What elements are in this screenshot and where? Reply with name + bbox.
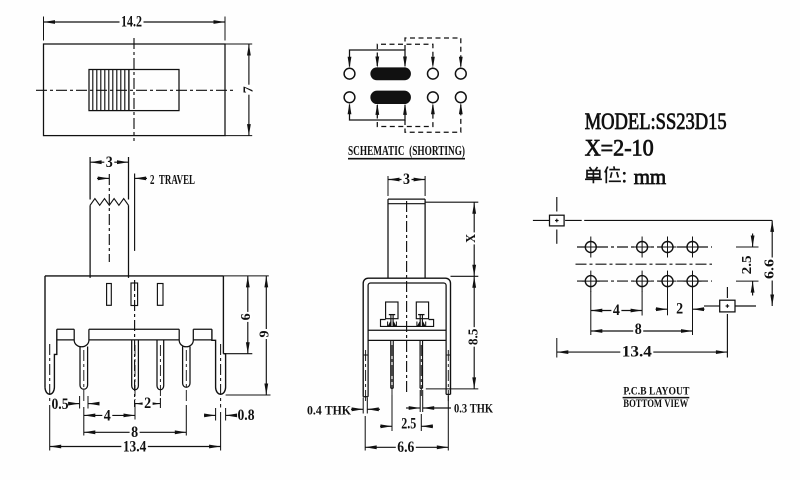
svg-text:3: 3: [106, 154, 113, 171]
svg-text:2: 2: [676, 301, 683, 318]
svg-text:14.2: 14.2: [121, 14, 142, 31]
svg-text:6: 6: [239, 313, 254, 320]
svg-text:3: 3: [403, 171, 410, 188]
svg-text:7: 7: [241, 86, 256, 93]
svg-text:9: 9: [257, 331, 272, 338]
svg-text:6.6: 6.6: [397, 439, 414, 456]
svg-text:8.5: 8.5: [466, 329, 481, 346]
svg-text:13.4: 13.4: [123, 439, 147, 456]
svg-text:0.4 THK: 0.4 THK: [307, 403, 352, 418]
svg-text:4: 4: [613, 302, 620, 319]
svg-text:2 TRAVEL: 2 TRAVEL: [150, 172, 195, 187]
svg-text:SCHEMATIC (SHORTING): SCHEMATIC (SHORTING): [348, 144, 465, 159]
svg-text:6.6: 6.6: [763, 259, 778, 279]
svg-text:mm: mm: [634, 164, 667, 189]
svg-text:0.5: 0.5: [52, 396, 69, 413]
svg-text:8: 8: [635, 321, 642, 338]
svg-text:MODEL:SS23D15: MODEL:SS23D15: [585, 109, 727, 135]
svg-text:0.8: 0.8: [238, 407, 255, 424]
svg-text:2.5: 2.5: [401, 416, 416, 433]
svg-text:0.3 THK: 0.3 THK: [454, 401, 494, 416]
svg-text:X: X: [464, 234, 479, 243]
svg-text:13.4: 13.4: [622, 343, 652, 360]
svg-text:2: 2: [144, 395, 151, 412]
svg-text:2.5: 2.5: [740, 255, 755, 274]
svg-text:X=2-10: X=2-10: [585, 135, 654, 161]
svg-text:P.C.B LAYOUT: P.C.B LAYOUT: [623, 386, 689, 398]
svg-text:4: 4: [104, 407, 111, 424]
svg-text:BOTTOM VIEW: BOTTOM VIEW: [623, 398, 688, 410]
